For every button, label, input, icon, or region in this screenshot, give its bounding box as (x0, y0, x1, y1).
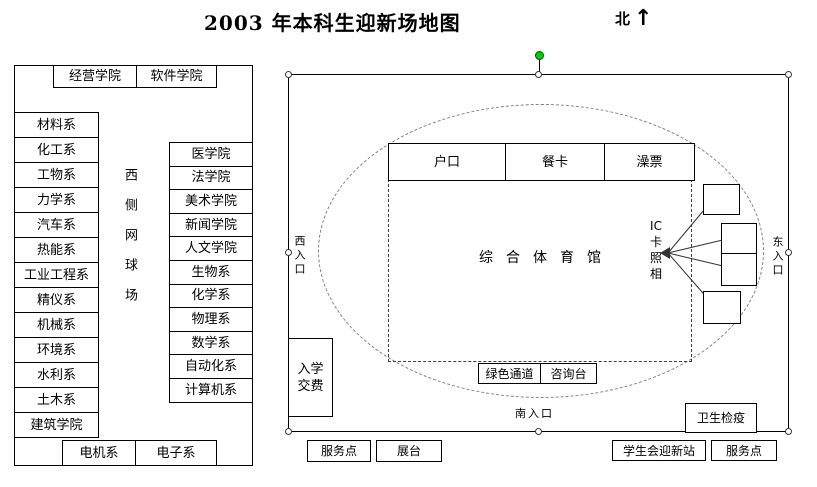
dept-box: 水利系 (14, 362, 99, 388)
rotation-handle[interactable] (535, 51, 544, 60)
selection-handle-bottom-right[interactable] (785, 428, 792, 435)
service-point-box: 服务点 (711, 440, 777, 461)
dept-box: 工业工程系 (14, 262, 99, 288)
photo-booth-box (703, 184, 740, 215)
welcome-site-map: 2003 年本科生迎新场地图 北 ↑ 经营学院 软件学院 材料系 化工系 工物系… (0, 0, 817, 487)
student-union-station-box: 学生会迎新站 (612, 440, 706, 461)
service-box-mealcard: 餐卡 (505, 143, 605, 181)
compass: 北 ↑ (615, 8, 652, 29)
departments-left-column: 材料系 化工系 工物系 力学系 汽车系 热能系 工业工程系 精仪系 机械系 环境… (14, 112, 99, 438)
dept-box: 计算机系 (169, 378, 253, 403)
dept-box: 土木系 (14, 387, 99, 413)
selection-handle-mid-right[interactable] (785, 249, 792, 256)
dept-box: 新闻学院 (169, 213, 253, 238)
departments-top-row: 经营学院 软件学院 (53, 65, 217, 88)
dept-box: 建筑学院 (14, 412, 99, 438)
north-label: 北 (615, 8, 630, 29)
info-desk-box: 咨询台 (540, 363, 597, 384)
gym-top-service-row: 户口 餐卡 澡票 (388, 143, 695, 181)
quarantine-box: 卫生检疫 (685, 403, 757, 433)
ic-photo-label: IC 卡 照 相 (645, 218, 667, 282)
dept-box: 电子系 (135, 440, 217, 466)
exhibition-booth-box: 展台 (376, 440, 442, 462)
gym-map-canvas[interactable]: 户口 餐卡 澡票 综合体育馆 IC 卡 照 相 西入口 东入口 南入口 入学交费… (288, 74, 789, 432)
tennis-court-label: 西侧网球场 (120, 168, 139, 318)
photo-booth-box (721, 253, 757, 286)
dept-box: 经营学院 (53, 65, 137, 88)
dept-box: 数学系 (169, 331, 253, 356)
departments-panel: 经营学院 软件学院 材料系 化工系 工物系 力学系 汽车系 热能系 工业工程系 … (14, 65, 253, 466)
dept-box: 工物系 (14, 162, 99, 188)
photo-booth-box (703, 291, 741, 324)
service-box-hukou: 户口 (388, 143, 506, 181)
dept-box: 汽车系 (14, 212, 99, 238)
south-entrance-label: 南入口 (515, 405, 554, 421)
dept-box: 环境系 (14, 337, 99, 363)
enrollment-fee-box: 入学交费 (288, 338, 333, 417)
dept-box: 物理系 (169, 307, 253, 332)
dept-box: 精仪系 (14, 287, 99, 313)
dept-box: 化学系 (169, 284, 253, 309)
dept-box: 电机系 (62, 440, 136, 466)
dept-box: 机械系 (14, 312, 99, 338)
page-title: 2003 年本科生迎新场地图 (204, 7, 461, 36)
dept-box: 力学系 (14, 187, 99, 213)
dept-box: 医学院 (169, 142, 253, 167)
selection-handle-mid-left[interactable] (285, 249, 292, 256)
selection-handle-bottom-left[interactable] (285, 428, 292, 435)
selection-handle-bottom-center[interactable] (535, 428, 542, 435)
selection-handle-top-center[interactable] (535, 71, 542, 78)
dept-box: 生物系 (169, 260, 253, 285)
dept-box: 自动化系 (169, 354, 253, 379)
west-entrance-label: 西入口 (293, 235, 305, 277)
service-point-box: 服务点 (307, 440, 371, 462)
east-entrance-label: 东入口 (771, 236, 783, 278)
departments-bottom-row: 电机系 电子系 (62, 440, 217, 466)
dept-box: 化工系 (14, 137, 99, 163)
dept-box: 软件学院 (136, 65, 217, 88)
dept-box: 人文学院 (169, 236, 253, 261)
service-box-bathticket: 澡票 (604, 143, 695, 181)
departments-right-column: 医学院 法学院 美术学院 新闻学院 人文学院 生物系 化学系 物理系 数学系 自… (169, 142, 253, 403)
south-service-row: 绿色通道 咨询台 (478, 363, 597, 384)
dept-box: 美术学院 (169, 189, 253, 214)
dept-box: 法学院 (169, 166, 253, 191)
selection-handle-top-left[interactable] (285, 71, 292, 78)
north-arrow-icon: ↑ (634, 9, 652, 29)
selection-handle-top-right[interactable] (785, 71, 792, 78)
dept-box: 热能系 (14, 237, 99, 263)
enrollment-fee-label: 入学交费 (296, 361, 326, 395)
photo-booth-box (721, 223, 757, 254)
dept-box: 材料系 (14, 112, 99, 138)
green-channel-box: 绿色通道 (478, 363, 541, 384)
